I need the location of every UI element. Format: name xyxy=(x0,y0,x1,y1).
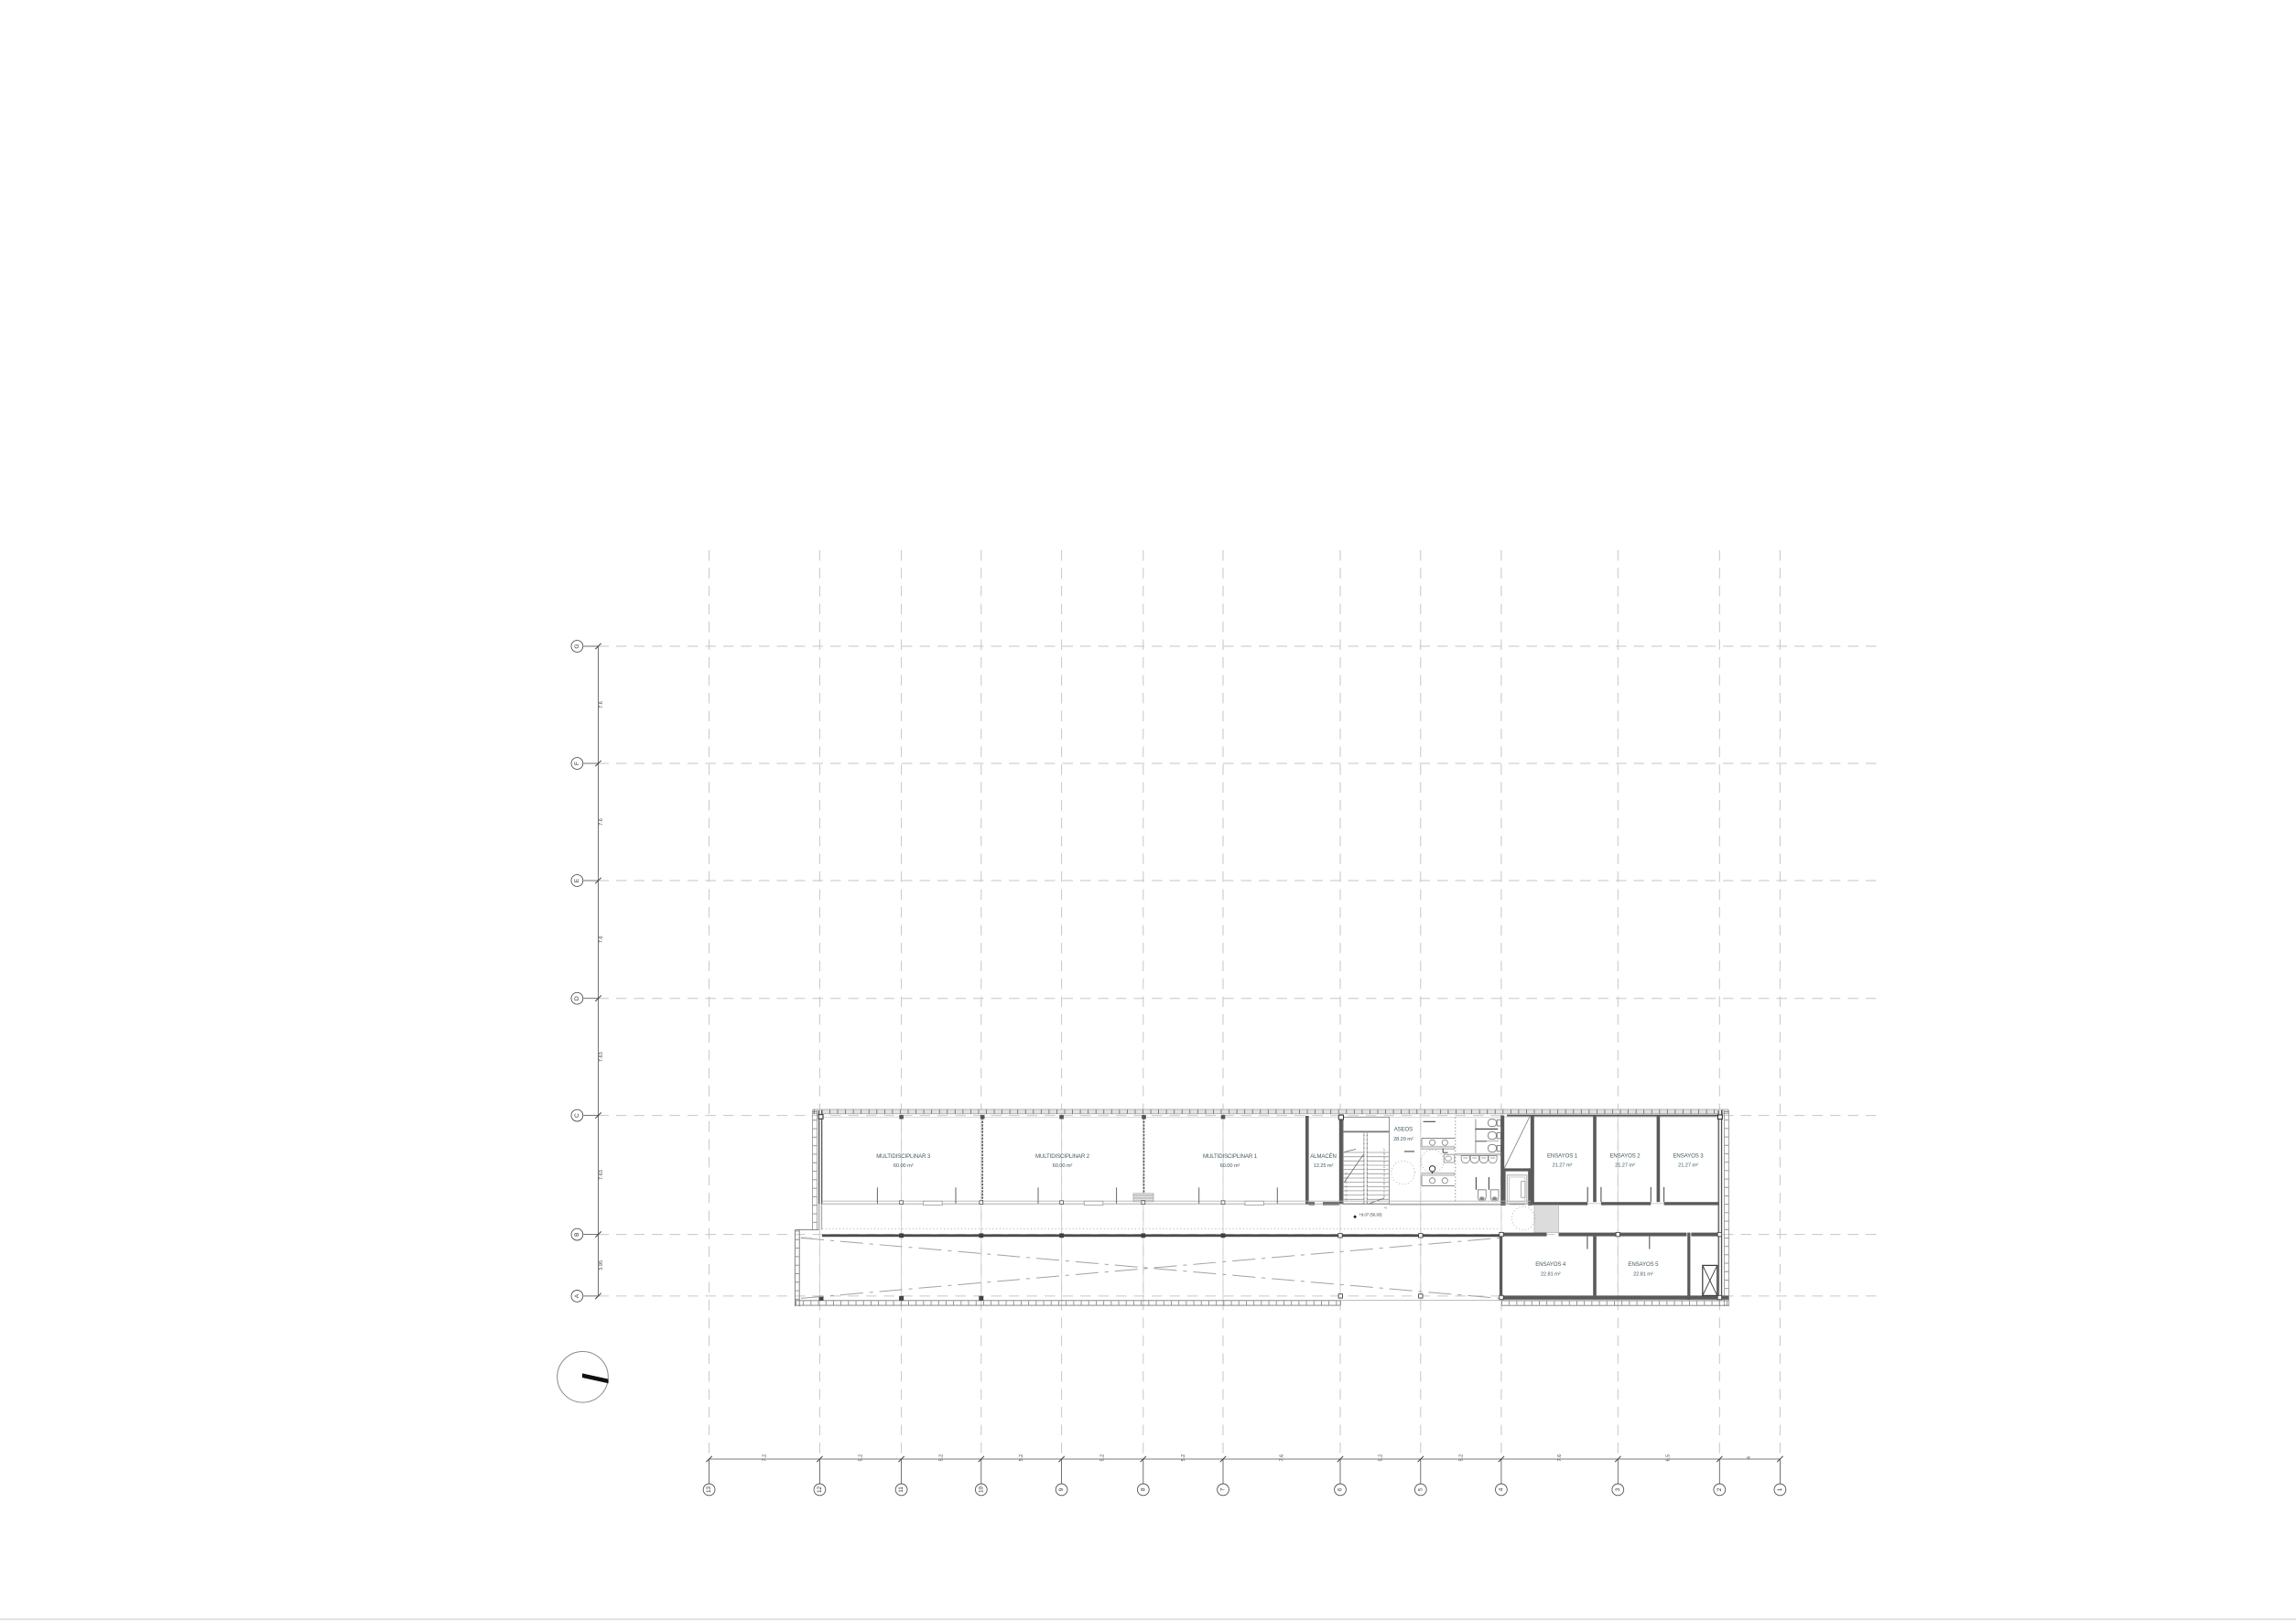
svg-text:7.63: 7.63 xyxy=(599,1170,604,1180)
svg-text:3.95: 3.95 xyxy=(599,1260,604,1271)
svg-text:12.25 m²: 12.25 m² xyxy=(1314,1163,1334,1169)
svg-text:5.2: 5.2 xyxy=(858,1454,863,1462)
svg-text:4: 4 xyxy=(1498,1487,1504,1491)
svg-text:10: 10 xyxy=(978,1486,984,1492)
svg-text:21.27 m²: 21.27 m² xyxy=(1553,1162,1573,1168)
svg-text:33: 33 xyxy=(1345,1184,1348,1188)
svg-text:44: 44 xyxy=(1382,1178,1386,1182)
svg-text:C: C xyxy=(574,1113,580,1118)
svg-text:MULTIDISCIPLINAR 2: MULTIDISCIPLINAR 2 xyxy=(1035,1153,1090,1160)
svg-text:22.81 m²: 22.81 m² xyxy=(1633,1271,1653,1277)
svg-text:48: 48 xyxy=(1382,1195,1386,1198)
svg-text:8: 8 xyxy=(1140,1487,1146,1491)
svg-text:ENSAYOS 5: ENSAYOS 5 xyxy=(1628,1261,1659,1268)
svg-text:ENSAYOS 2: ENSAYOS 2 xyxy=(1609,1153,1641,1160)
svg-text:E: E xyxy=(574,878,580,882)
svg-text:41: 41 xyxy=(1382,1165,1386,1169)
svg-text:ENSAYOS 4: ENSAYOS 4 xyxy=(1535,1261,1566,1268)
svg-text:5: 5 xyxy=(1417,1487,1424,1491)
svg-text:MULTIDISCIPLINAR 1: MULTIDISCIPLINAR 1 xyxy=(1203,1153,1258,1160)
svg-text:A: A xyxy=(574,1293,580,1298)
svg-text:D: D xyxy=(574,996,580,1000)
svg-text:35: 35 xyxy=(1345,1176,1348,1180)
svg-text:5.2: 5.2 xyxy=(1019,1454,1024,1462)
svg-text:7.6: 7.6 xyxy=(599,701,604,708)
svg-text:38: 38 xyxy=(1382,1152,1386,1156)
svg-text:5.2: 5.2 xyxy=(939,1454,945,1462)
svg-text:7.6: 7.6 xyxy=(1280,1454,1285,1462)
svg-text:ASEOS: ASEOS xyxy=(1394,1127,1413,1133)
svg-text:7: 7 xyxy=(1220,1487,1227,1491)
svg-text:6.5: 6.5 xyxy=(1665,1454,1671,1462)
svg-text:21.27 m²: 21.27 m² xyxy=(1615,1162,1635,1168)
svg-text:4: 4 xyxy=(1747,1456,1752,1459)
svg-text:21.27 m²: 21.27 m² xyxy=(1678,1162,1698,1168)
svg-text:60.00 m²: 60.00 m² xyxy=(893,1163,914,1169)
svg-text:34: 34 xyxy=(1345,1181,1348,1184)
svg-text:ALMACÉN: ALMACÉN xyxy=(1310,1153,1337,1160)
svg-text:43: 43 xyxy=(1382,1173,1386,1177)
svg-text:45: 45 xyxy=(1382,1182,1386,1185)
svg-text:32: 32 xyxy=(1345,1189,1348,1193)
svg-text:40: 40 xyxy=(1382,1161,1386,1164)
svg-text:11: 11 xyxy=(898,1487,904,1493)
svg-text:47: 47 xyxy=(1382,1191,1386,1195)
svg-text:7.2: 7.2 xyxy=(762,1454,767,1462)
svg-text:6: 6 xyxy=(1338,1487,1344,1491)
svg-text:5.2: 5.2 xyxy=(1100,1454,1106,1462)
svg-text:5.2: 5.2 xyxy=(1378,1454,1383,1462)
svg-text:3: 3 xyxy=(1615,1487,1621,1491)
svg-text:60.00 m²: 60.00 m² xyxy=(1220,1163,1240,1169)
svg-text:ENSAYOS 1: ENSAYOS 1 xyxy=(1547,1153,1578,1160)
svg-text:22.81 m²: 22.81 m² xyxy=(1541,1271,1561,1277)
svg-text:F: F xyxy=(574,762,580,765)
svg-text:2: 2 xyxy=(1717,1487,1723,1491)
svg-text:+9.07 (56.93): +9.07 (56.93) xyxy=(1359,1213,1383,1217)
svg-text:5.2: 5.2 xyxy=(1181,1454,1186,1462)
svg-text:ENSAYOS 3: ENSAYOS 3 xyxy=(1673,1153,1704,1160)
svg-text:49: 49 xyxy=(1384,1206,1388,1210)
svg-text:30: 30 xyxy=(1345,1197,1348,1201)
svg-text:39: 39 xyxy=(1382,1156,1386,1160)
svg-text:MULTIDISCIPLINAR 3: MULTIDISCIPLINAR 3 xyxy=(876,1153,931,1160)
svg-text:12: 12 xyxy=(817,1486,823,1492)
svg-text:9: 9 xyxy=(1058,1487,1065,1491)
svg-text:28.29 m²: 28.29 m² xyxy=(1393,1137,1413,1142)
svg-text:7.6: 7.6 xyxy=(599,936,604,944)
svg-text:7.6: 7.6 xyxy=(1557,1454,1563,1462)
svg-text:36: 36 xyxy=(1345,1172,1348,1175)
svg-text:31: 31 xyxy=(1345,1194,1348,1197)
svg-text:60.00 m²: 60.00 m² xyxy=(1053,1163,1073,1169)
svg-text:46: 46 xyxy=(1382,1186,1386,1190)
svg-text:7.6: 7.6 xyxy=(599,818,604,826)
svg-text:13: 13 xyxy=(706,1486,712,1492)
svg-text:1: 1 xyxy=(1777,1487,1783,1491)
svg-text:7.63: 7.63 xyxy=(599,1052,604,1062)
svg-text:42: 42 xyxy=(1382,1169,1386,1173)
svg-text:G: G xyxy=(574,643,580,648)
svg-text:B: B xyxy=(574,1232,580,1237)
svg-text:5.2: 5.2 xyxy=(1458,1454,1464,1462)
svg-text:37: 37 xyxy=(1382,1148,1386,1152)
